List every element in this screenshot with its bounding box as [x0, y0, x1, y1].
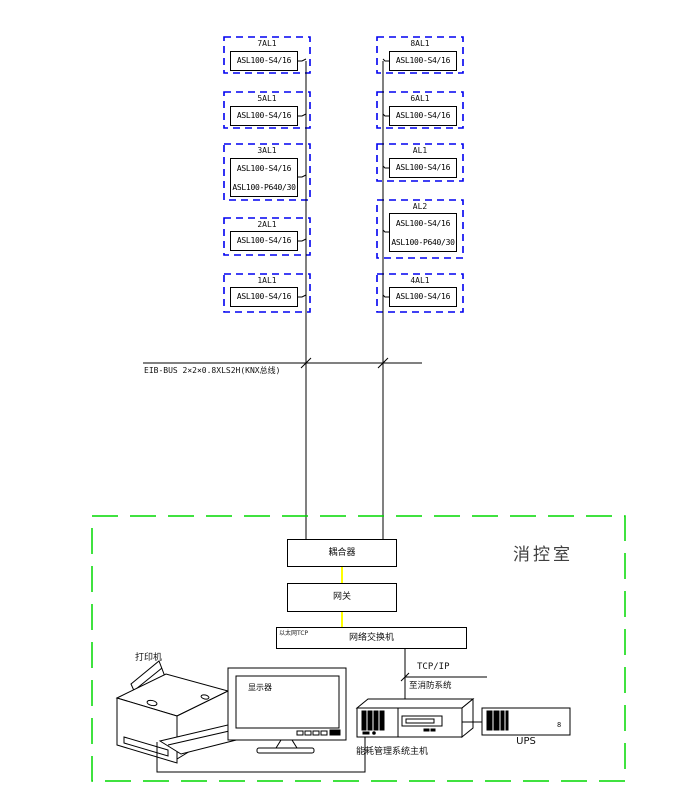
module-label: ASL100-S4/16: [390, 214, 456, 233]
monitor-label: 显示器: [248, 682, 272, 693]
panel-title: AL2: [377, 201, 463, 213]
module-label: ASL100-S4/16: [390, 159, 456, 177]
gateway-box: 网关: [287, 583, 397, 612]
module-label: ASL100-S4/16: [390, 288, 456, 306]
module-label: ASL100-P640/30: [390, 233, 456, 252]
panel-title: 8AL1: [377, 38, 463, 50]
ups-label: UPS: [482, 736, 570, 747]
switch-tag-label: 以太网TCP: [279, 628, 308, 637]
printer-label: 打印机: [135, 650, 162, 663]
module-label: ASL100-S4/16: [231, 107, 297, 125]
host-label: 能耗管理系统主机: [356, 744, 428, 757]
panel-title: 6AL1: [377, 93, 463, 105]
module-label: ASL100-S4/16: [231, 232, 297, 250]
bus-riser-lines: [306, 61, 383, 539]
panel-module-box: ASL100-S4/16: [230, 231, 298, 251]
panel-title: AL1: [377, 145, 463, 157]
fire-system-link-label: 至消防系统: [409, 679, 452, 691]
panel-title: 7AL1: [224, 38, 310, 50]
module-label: ASL100-S4/16: [231, 52, 297, 70]
panel-module-box: ASL100-S4/16 ASL100-P640/30: [389, 213, 457, 252]
module-label: ASL100-S4/16: [231, 159, 297, 178]
panel-title: 1AL1: [224, 275, 310, 287]
schematic-canvas: 7AL1 ASL100-S4/16 5AL1 ASL100-S4/16 3AL1…: [0, 0, 682, 811]
tcpip-label: TCP/IP: [417, 662, 450, 672]
panel-module-box: ASL100-S4/16: [230, 287, 298, 307]
panel-title: 2AL1: [224, 219, 310, 231]
eib-bus-label: EIB-BUS 2×2×0.8XLS2H(KNX总线): [144, 365, 280, 376]
panel-title: 3AL1: [224, 145, 310, 157]
panel-module-box: ASL100-S4/16: [389, 158, 457, 178]
panel-module-box: ASL100-S4/16: [389, 287, 457, 307]
panel-module-box: ASL100-S4/16: [389, 51, 457, 71]
module-label: ASL100-S4/16: [231, 288, 297, 306]
host-computer-graphic: [357, 699, 473, 737]
module-label: ASL100-P640/30: [231, 178, 297, 197]
panel-module-box: ASL100-S4/16: [389, 106, 457, 126]
room-label: 消控室: [513, 540, 573, 565]
module-label: ASL100-S4/16: [390, 52, 456, 70]
monitor-graphic: [228, 668, 346, 753]
module-label: ASL100-S4/16: [390, 107, 456, 125]
panel-title: 4AL1: [377, 275, 463, 287]
diagram-linework: [0, 0, 682, 811]
panel-module-box: ASL100-S4/16 ASL100-P640/30: [230, 158, 298, 197]
panel-title: 5AL1: [224, 93, 310, 105]
panel-module-box: ASL100-S4/16: [230, 106, 298, 126]
coupler-box: 耦合器: [287, 539, 397, 567]
panel-module-box: ASL100-S4/16: [230, 51, 298, 71]
tcpip-lines: [401, 649, 487, 702]
panel-stub-connectors: [298, 59, 389, 297]
ups-outlet-mark: 8: [557, 721, 561, 729]
